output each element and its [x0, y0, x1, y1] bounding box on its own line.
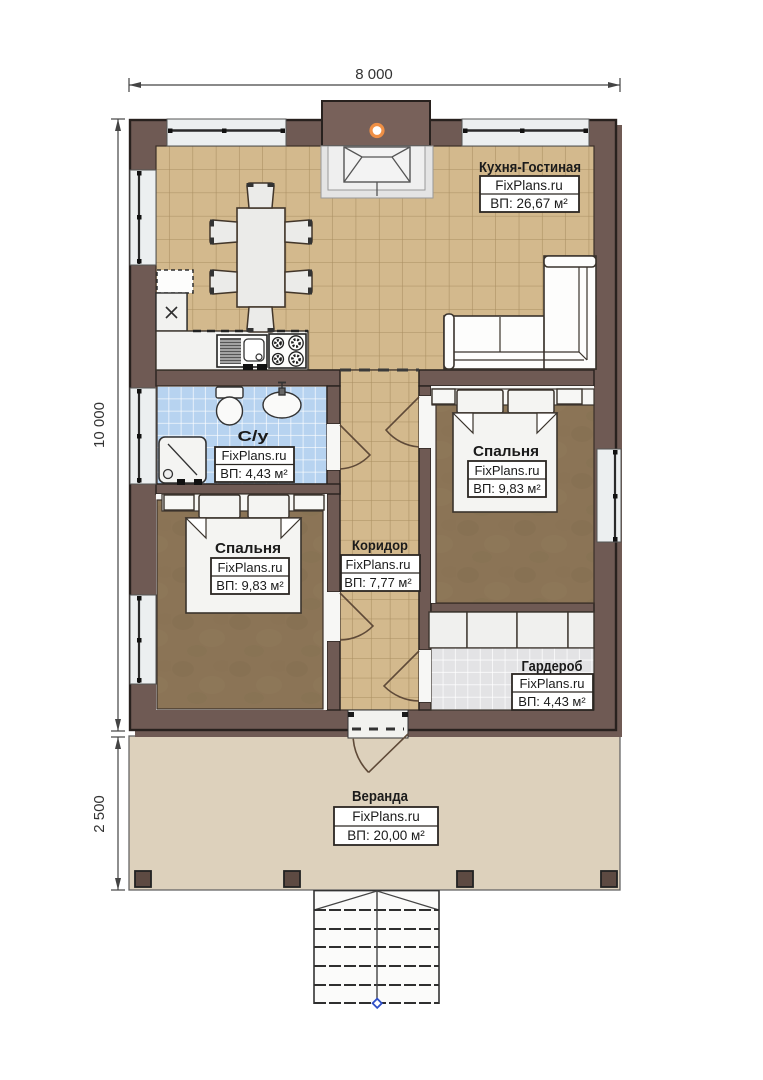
svg-text:8 000: 8 000 [355, 66, 393, 83]
svg-text:ВП: 9,83 м²: ВП: 9,83 м² [216, 578, 284, 593]
svg-text:ВП: 4,43 м²: ВП: 4,43 м² [220, 466, 288, 481]
svg-text:2 500: 2 500 [91, 795, 108, 833]
svg-text:ВП: 9,83 м²: ВП: 9,83 м² [473, 481, 541, 496]
svg-text:С/у: С/у [238, 428, 270, 445]
svg-text:ВП: 26,67 м²: ВП: 26,67 м² [490, 196, 568, 211]
svg-text:FixPlans.ru: FixPlans.ru [352, 809, 420, 824]
svg-text:FixPlans.ru: FixPlans.ru [519, 676, 584, 691]
svg-text:Гардероб: Гардероб [522, 658, 583, 675]
svg-text:FixPlans.ru: FixPlans.ru [221, 448, 286, 463]
svg-text:ВП: 7,77 м²: ВП: 7,77 м² [344, 575, 412, 590]
svg-text:FixPlans.ru: FixPlans.ru [495, 178, 563, 193]
svg-text:Спальня: Спальня [473, 443, 539, 460]
svg-text:10 000: 10 000 [91, 402, 108, 448]
svg-text:Кухня-Гостиная: Кухня-Гостиная [479, 159, 581, 176]
svg-text:Спальня: Спальня [215, 540, 281, 557]
svg-text:Коридор: Коридор [352, 538, 408, 553]
svg-text:Веранда: Веранда [352, 788, 409, 805]
svg-text:ВП: 4,43 м²: ВП: 4,43 м² [518, 694, 586, 709]
svg-text:FixPlans.ru: FixPlans.ru [345, 557, 410, 572]
svg-text:FixPlans.ru: FixPlans.ru [217, 560, 282, 575]
svg-text:ВП: 20,00 м²: ВП: 20,00 м² [347, 828, 425, 843]
svg-text:FixPlans.ru: FixPlans.ru [474, 463, 539, 478]
